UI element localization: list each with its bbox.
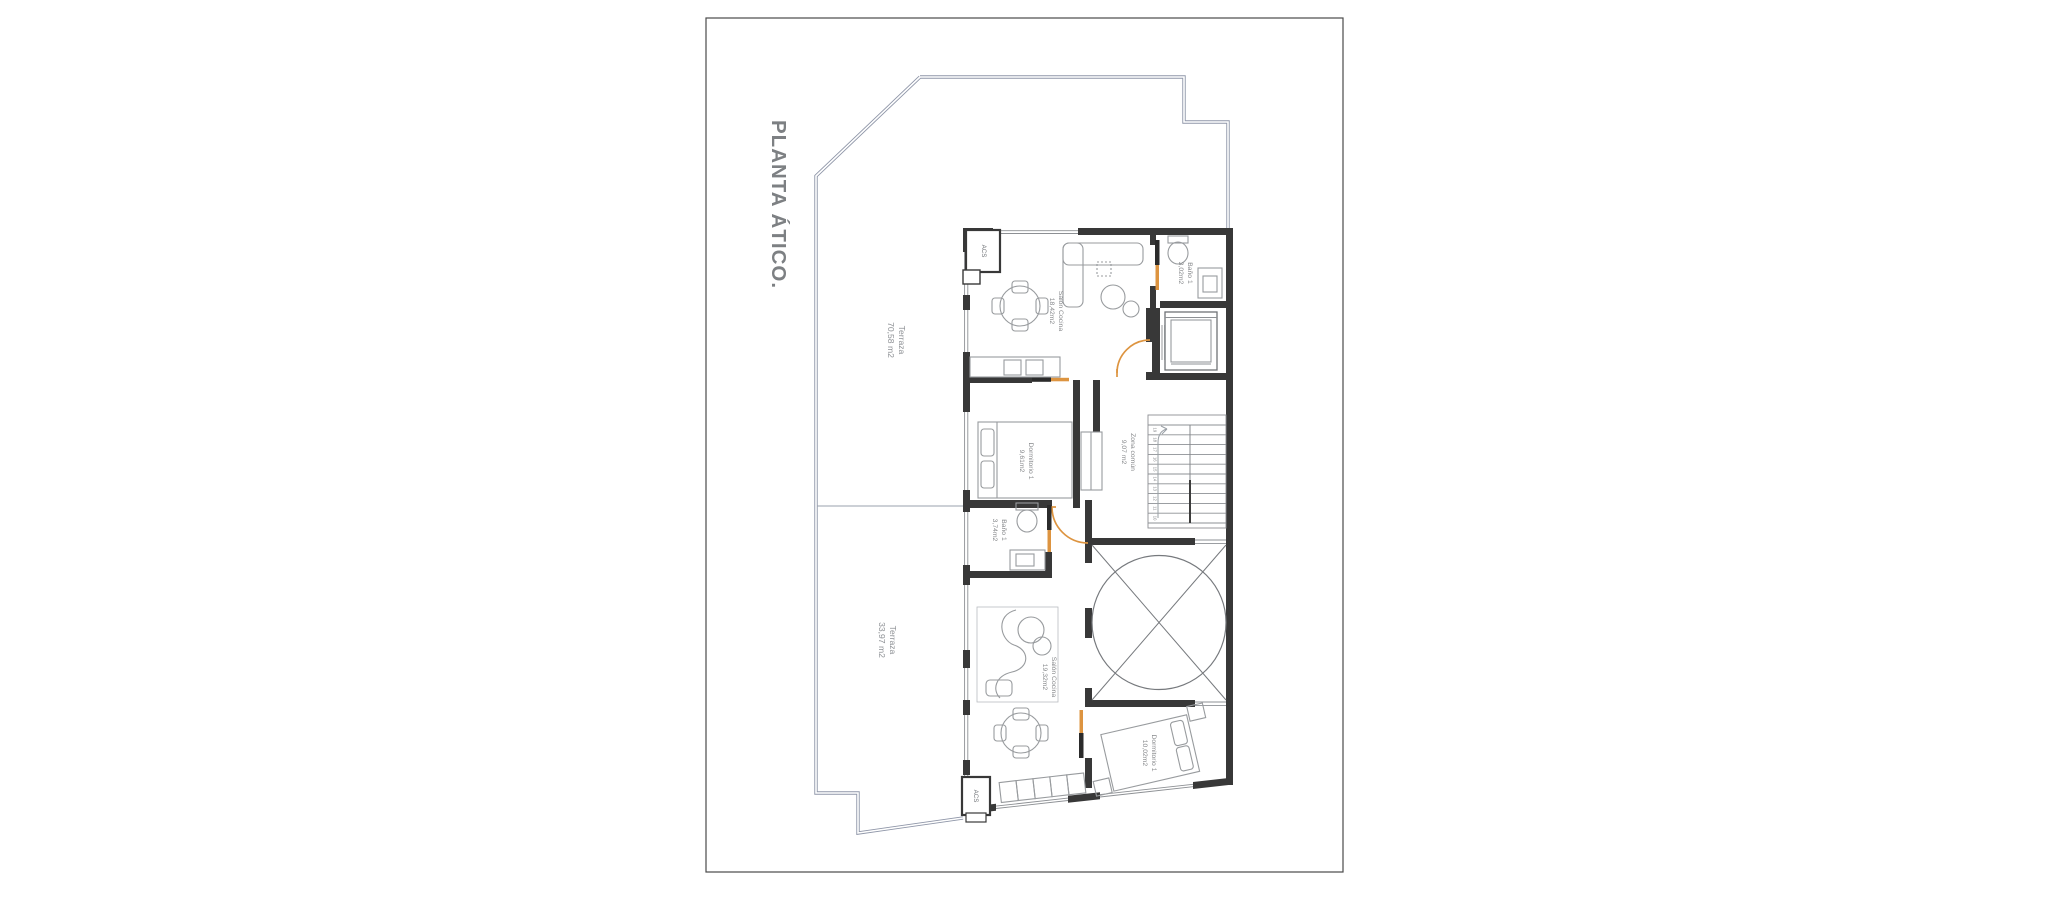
acs-upper-label: ACS — [980, 245, 987, 258]
tread-number: 10 — [1153, 516, 1158, 521]
room-label-terraza-lower: Terraza 33,97 m2 — [877, 622, 898, 658]
tread-number: 17 — [1153, 447, 1158, 452]
sliding-door-dorm-lower-dark — [1079, 733, 1084, 758]
room-name: Dormitorio 1 — [1027, 442, 1034, 479]
room-name: Baño 1 — [1000, 519, 1007, 541]
sliding-door-dorm-lower-accent — [1080, 710, 1084, 733]
sliding-door-bath-lower-accent — [1048, 530, 1052, 552]
room-area: 9,61m2 — [1018, 450, 1025, 473]
tread-number: 19 — [1153, 428, 1158, 433]
tread-number: 15 — [1153, 467, 1158, 472]
tread-number: 11 — [1153, 506, 1158, 511]
room-area: 19,32m2 — [1041, 664, 1048, 691]
room-name: Terraza — [897, 326, 907, 355]
tread-number: 18 — [1153, 437, 1158, 442]
room-name: Salón Cocina — [1050, 657, 1057, 698]
tread-number: 12 — [1153, 496, 1158, 501]
sliding-door-bath-upper-accent — [1156, 265, 1160, 290]
tread-number: 13 — [1153, 486, 1158, 491]
sliding-door-bath-upper-dark — [1155, 240, 1160, 265]
page-title: PLANTA ÁTICO. — [767, 120, 790, 289]
room-name: Baño 1 — [1186, 262, 1193, 284]
room-area: 33,97 m2 — [877, 622, 887, 658]
floor-plan-svg: PLANTA ÁTICO. — [0, 0, 2048, 900]
tread-number: 14 — [1153, 477, 1158, 482]
room-area: 70,58 m2 — [886, 322, 896, 358]
sliding-door-bath-lower-dark — [1047, 505, 1052, 530]
room-area: 3,02m2 — [1177, 262, 1184, 285]
tread-number: 16 — [1153, 457, 1158, 462]
room-area: 3,74m2 — [991, 519, 998, 542]
sliding-door-dorm-upper-dark — [1032, 377, 1051, 382]
room-name: Salón Cocina — [1057, 291, 1064, 332]
room-name: Dormitorio 1 — [1150, 734, 1157, 771]
room-area: 18,42m2 — [1048, 298, 1055, 325]
room-name: Terraza — [888, 626, 898, 655]
room-area: 10,02m2 — [1141, 740, 1148, 767]
drawing-sheet — [706, 18, 1343, 872]
sheet-title: PLANTA ÁTICO. — [767, 120, 790, 289]
acs-lower-label: ACS — [972, 790, 979, 803]
page-background: PLANTA ÁTICO. — [0, 0, 2048, 900]
room-name: Zona común — [1129, 433, 1136, 471]
room-area: 9,07 m2 — [1120, 440, 1127, 465]
sliding-door-dorm-upper-accent — [1051, 378, 1069, 382]
room-label-terraza-upper: Terraza 70,58 m2 — [886, 322, 907, 358]
